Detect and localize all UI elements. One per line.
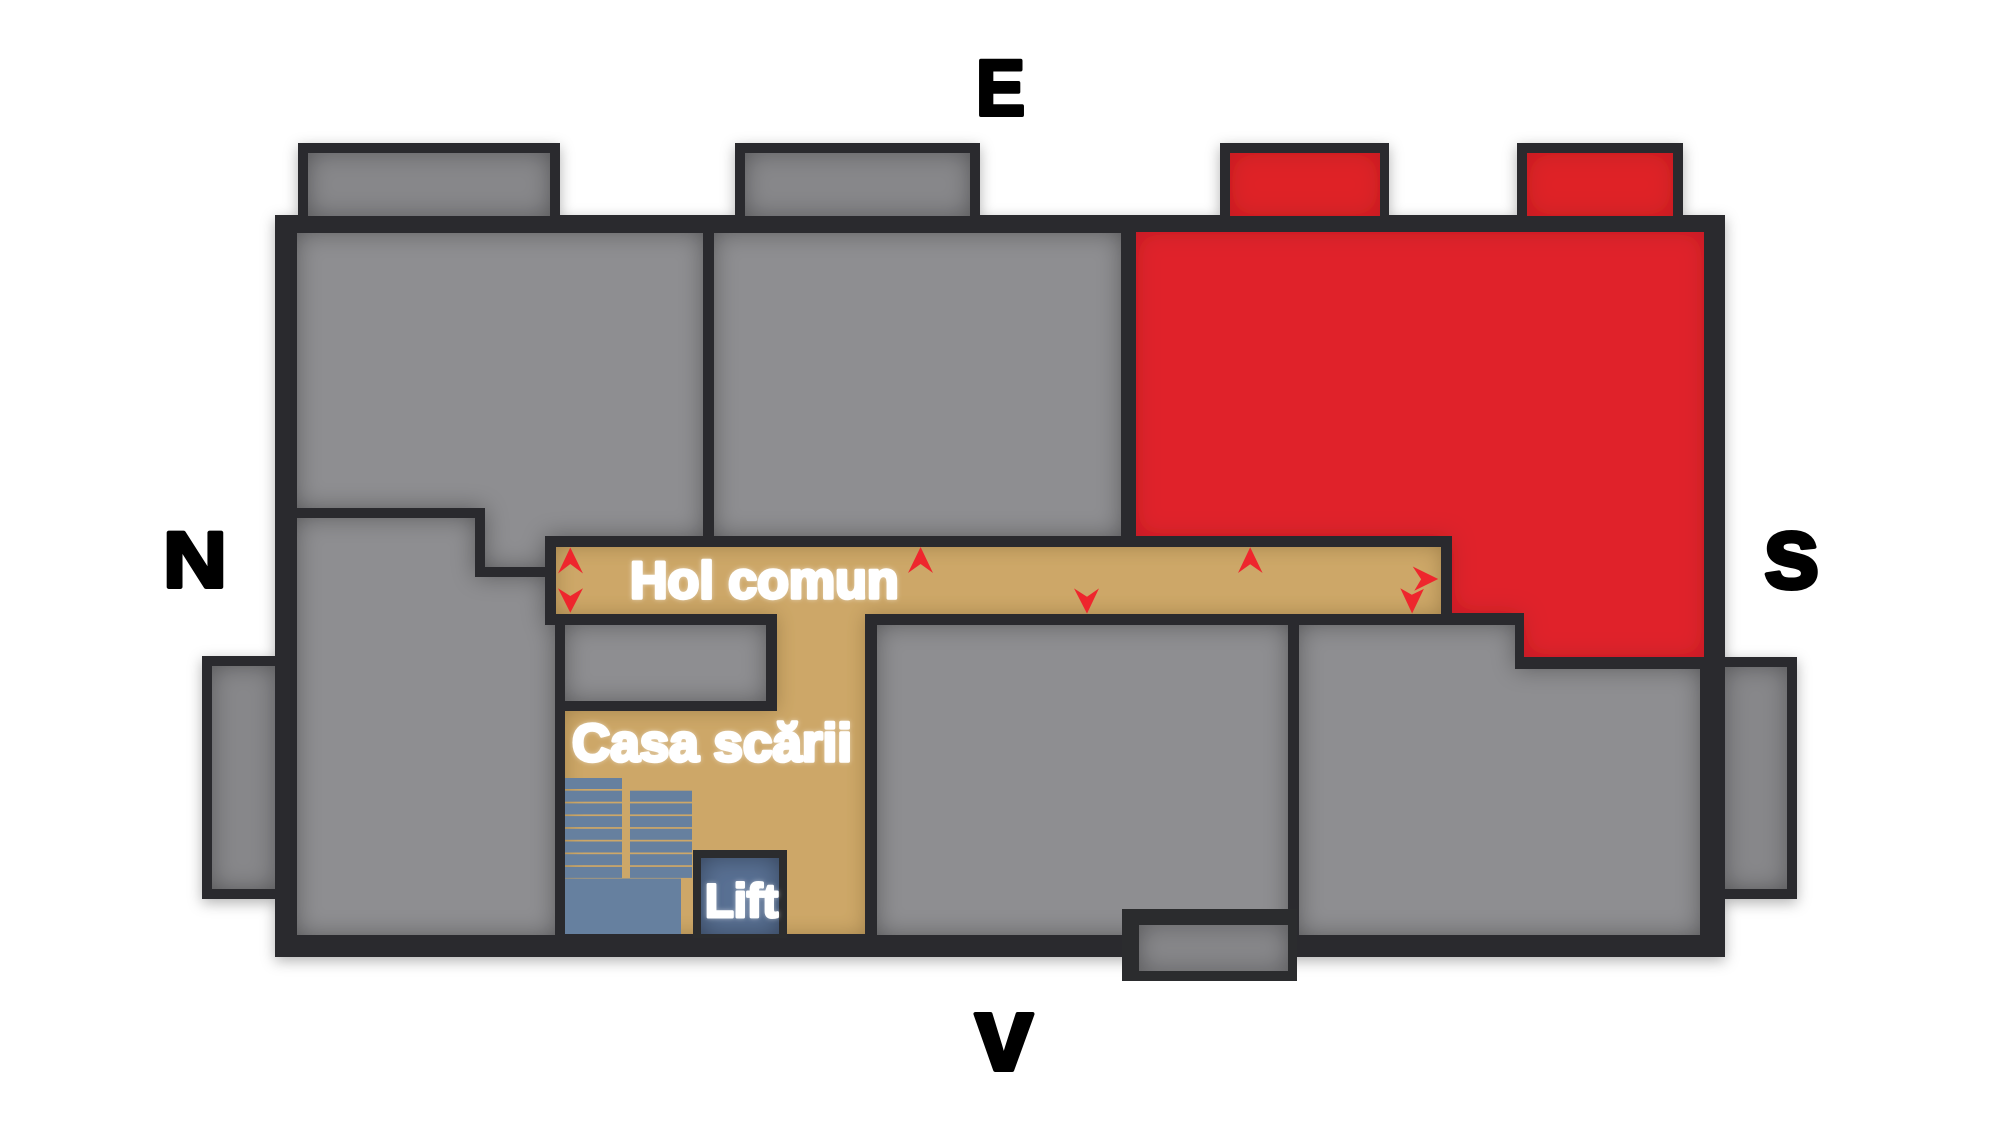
svg-text:Casa scării: Casa scării [572,714,852,773]
svg-text:N: N [163,515,227,604]
svg-text:Hol comun: Hol comun [630,552,899,610]
svg-text:s: s [1763,495,1820,611]
svg-text:E: E [976,43,1025,132]
svg-text:v: v [975,975,1033,1093]
svg-text:Lift: Lift [705,874,778,927]
